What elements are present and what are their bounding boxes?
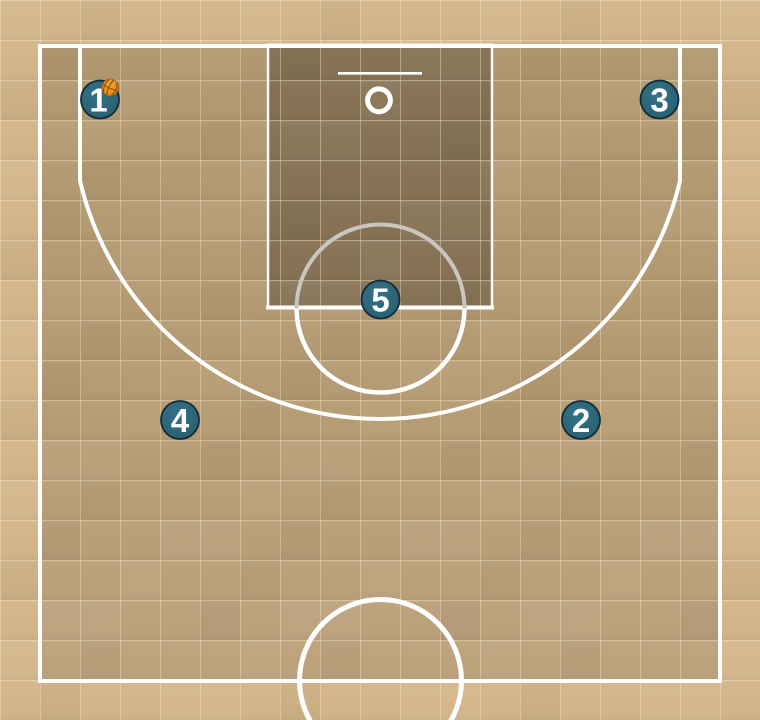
svg-text:4: 4 [171,402,190,439]
svg-text:2: 2 [572,402,590,439]
svg-text:3: 3 [650,81,668,118]
svg-text:5: 5 [371,281,389,318]
